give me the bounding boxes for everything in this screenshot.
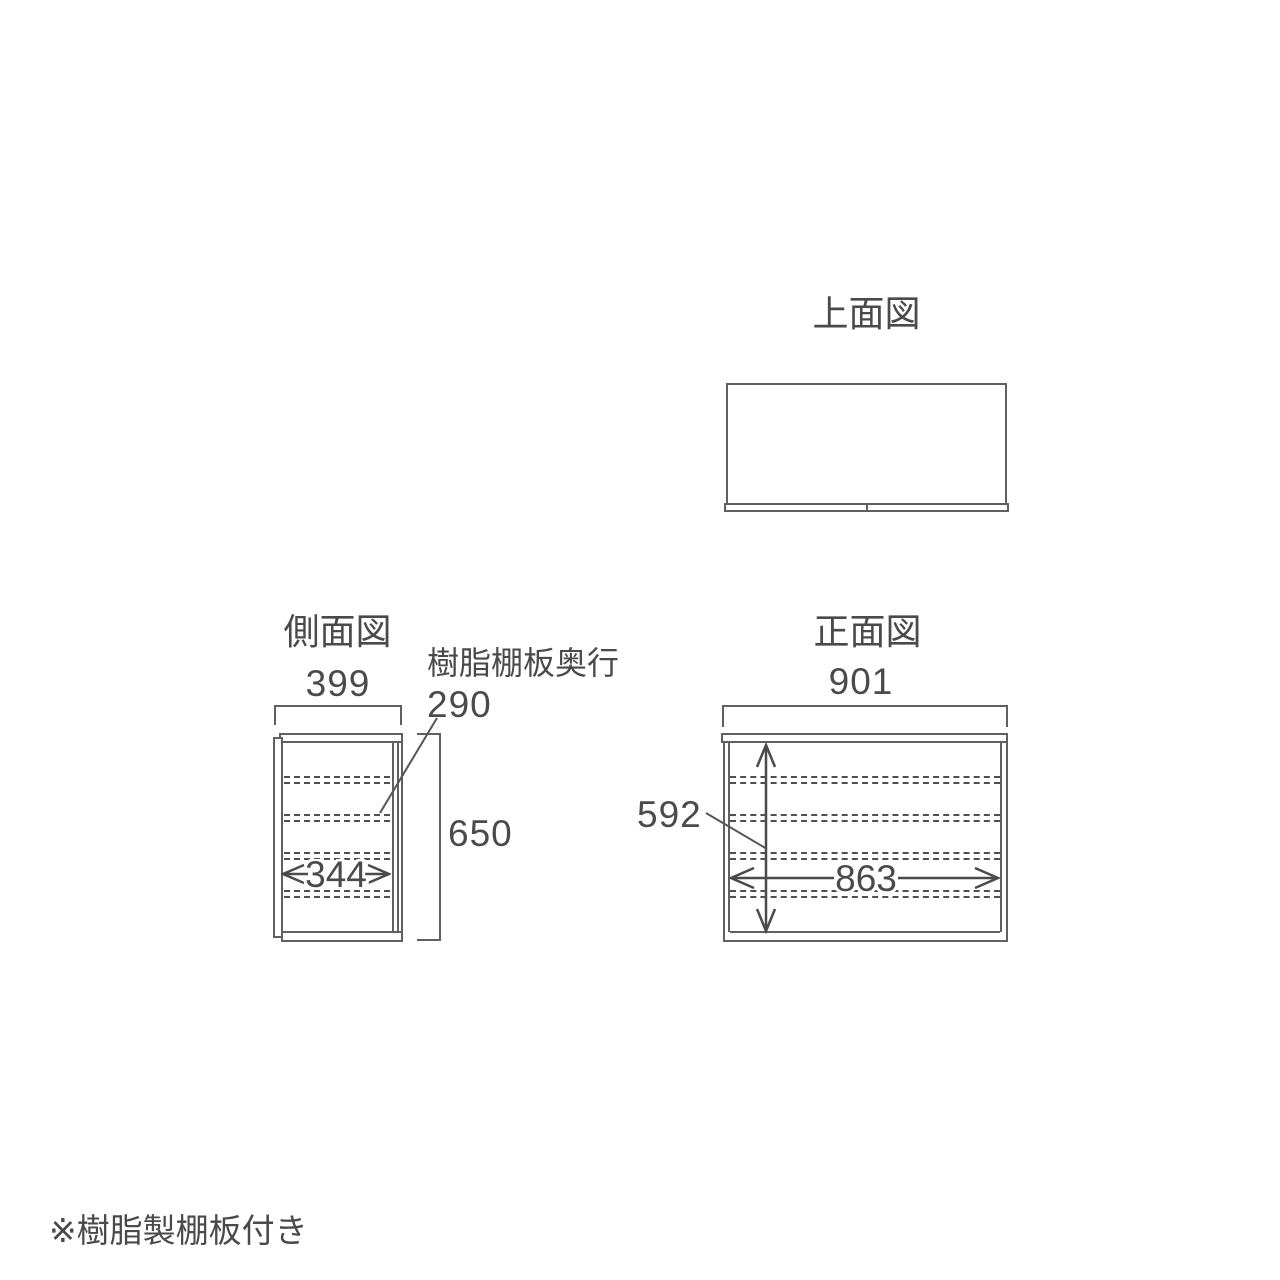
drawing-canvas: 上面図 側面図 399 bbox=[0, 0, 1280, 1280]
side-shelf-dashed-line bbox=[284, 814, 390, 816]
side-shelf-dashed-line bbox=[284, 890, 390, 892]
side-shelf-dashed-line bbox=[284, 896, 390, 898]
top-view-title: 上面図 bbox=[726, 296, 1007, 332]
side-inner-width-dimension: 344 bbox=[281, 859, 391, 889]
side-bottom-panel-line bbox=[283, 931, 401, 933]
shelf-depth-leader-line bbox=[376, 714, 442, 817]
front-inner-height-label: 592 bbox=[637, 796, 707, 833]
side-view-title: 側面図 bbox=[260, 614, 415, 650]
side-shelf-dashed-line bbox=[284, 852, 390, 854]
top-view-base-divider bbox=[866, 505, 868, 510]
front-inner-width-dimension: 863 bbox=[729, 862, 1000, 894]
side-shelf-dashed-line bbox=[284, 820, 390, 822]
side-back-panel bbox=[273, 737, 283, 938]
side-shelf-dashed-line bbox=[284, 776, 390, 778]
front-inner-height-leader-line bbox=[703, 808, 770, 853]
shelf-depth-value: 290 bbox=[427, 684, 619, 725]
front-outer-width-bracket bbox=[722, 705, 1008, 727]
side-height-label: 650 bbox=[448, 815, 518, 852]
footnote: ※樹脂製棚板付き bbox=[49, 1211, 308, 1251]
front-outer-width-label: 901 bbox=[718, 663, 1004, 700]
side-shelf-dashed-line bbox=[284, 782, 390, 784]
front-inner-width-label: 863 bbox=[835, 862, 897, 894]
shelf-depth-label: 樹脂棚板奥行 bbox=[427, 643, 619, 684]
side-outer-width-label: 399 bbox=[274, 665, 402, 702]
shelf-depth-callout: 樹脂棚板奥行 290 bbox=[427, 643, 619, 725]
top-view-base-strip bbox=[724, 503, 1009, 512]
front-view-title: 正面図 bbox=[790, 614, 945, 650]
side-inner-width-label: 344 bbox=[305, 859, 367, 889]
top-view-body bbox=[726, 383, 1007, 505]
front-right-inner-wall-line bbox=[1000, 743, 1002, 932]
